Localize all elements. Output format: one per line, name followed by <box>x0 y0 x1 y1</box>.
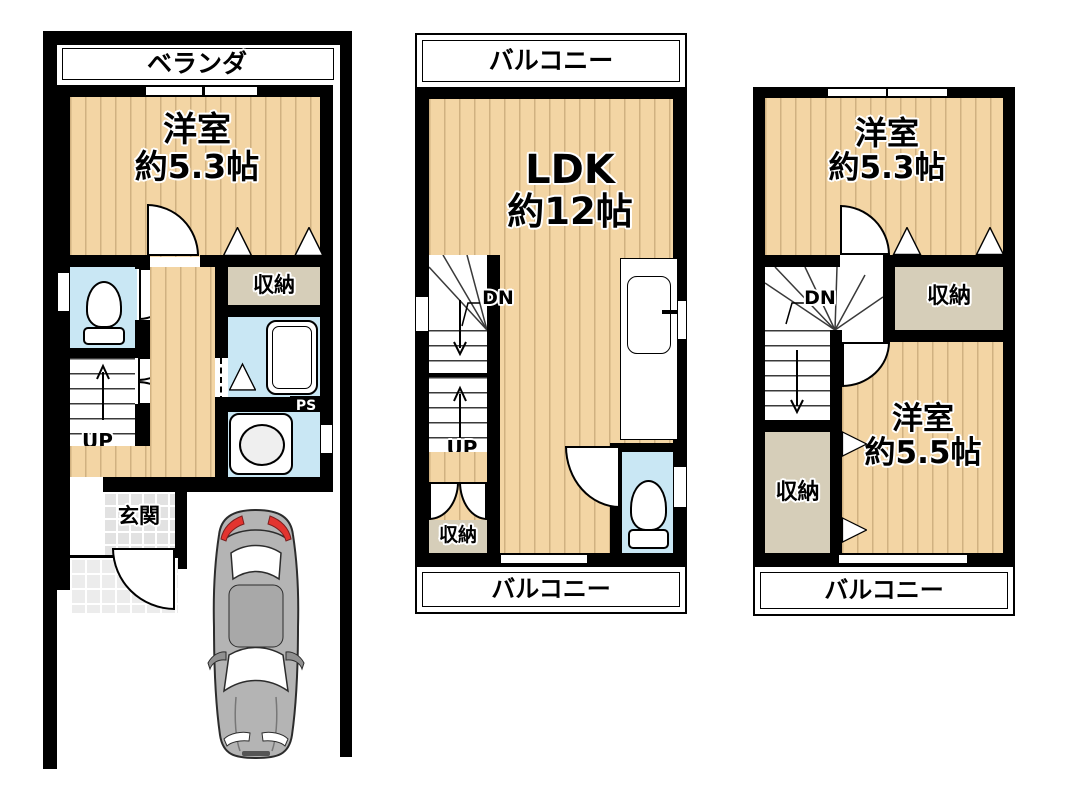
folding-door-icon <box>842 429 867 459</box>
wall <box>830 330 842 553</box>
bathtub-icon <box>266 320 318 395</box>
room-size: 約12帖 <box>470 192 670 233</box>
hall-2f <box>429 452 487 482</box>
wall <box>753 420 830 432</box>
wall <box>215 305 333 317</box>
floor-plan-page: ベランダ 洋室 約5.3帖 UP <box>0 0 1067 800</box>
wall <box>883 330 1003 342</box>
washbasin-bowl-icon <box>239 424 285 466</box>
room-name: LDK <box>470 148 670 192</box>
folding-door-icon <box>221 227 254 256</box>
wall <box>215 397 290 412</box>
window <box>673 466 687 508</box>
balcony-bottom-2f: バルコニー <box>415 565 687 614</box>
folding-door-icon <box>293 227 325 256</box>
dn-label-3f: DN <box>798 288 842 309</box>
balcony-inner-line <box>760 572 1008 609</box>
room-size: 約5.3帖 <box>787 151 987 185</box>
closet-3f-bottom-label: 収納 <box>765 481 830 505</box>
wall <box>888 255 1015 267</box>
folding-door-icon <box>974 227 1006 255</box>
room-youshitsu-3f-bottom-label: 洋室 約5.5帖 <box>843 402 1003 470</box>
wall <box>57 348 137 358</box>
folding-door-icon <box>229 358 256 396</box>
room-size: 約5.3帖 <box>97 149 297 185</box>
balcony-inner-line <box>422 572 680 607</box>
window <box>57 272 70 312</box>
window <box>145 86 203 96</box>
balcony-inner-line <box>422 40 680 82</box>
balcony-3f: バルコニー <box>753 565 1015 616</box>
closet-1f-label: 収納 <box>228 274 320 297</box>
wall <box>57 255 147 267</box>
room-youshitsu-3f-top-label: 洋室 約5.3帖 <box>787 116 987 185</box>
wall <box>1003 98 1015 563</box>
window <box>500 554 588 564</box>
window <box>415 296 429 332</box>
wall <box>135 320 150 358</box>
wall <box>610 443 687 452</box>
veranda-label: ベランダ <box>97 50 297 78</box>
room-name: 洋室 <box>97 112 297 149</box>
wall <box>43 31 57 769</box>
toilet-icon <box>630 480 667 531</box>
window <box>320 424 333 454</box>
wall <box>883 255 895 342</box>
wall <box>753 255 840 267</box>
room-name: 洋室 <box>787 116 987 151</box>
wall <box>215 477 333 492</box>
car-icon <box>200 505 312 763</box>
wall <box>340 31 352 757</box>
sliding-door-icon <box>220 358 222 402</box>
wall <box>135 255 150 269</box>
folding-door-icon <box>891 227 923 255</box>
wall <box>753 98 765 563</box>
room-name: 洋室 <box>843 402 1003 436</box>
wall <box>103 477 215 492</box>
down-arrow-icon <box>789 348 805 418</box>
room-size: 約5.5帖 <box>843 436 1003 470</box>
entrance-label: 玄関 <box>103 505 175 528</box>
hall-1f <box>150 267 215 477</box>
window-mullion <box>886 88 888 97</box>
wall <box>175 477 187 569</box>
dn-label-2f: DN <box>476 288 520 309</box>
faucet-icon <box>662 310 678 314</box>
wall <box>215 402 228 480</box>
toilet-tank-icon <box>83 327 125 345</box>
balcony-top-2f: バルコニー <box>415 33 687 89</box>
window <box>204 86 258 96</box>
kitchen-sink-icon <box>627 276 671 354</box>
folding-door-icon <box>842 515 867 545</box>
closet-3f-top-label: 収納 <box>895 285 1003 309</box>
wall <box>57 97 70 590</box>
room-ldk-label: LDK 約12帖 <box>470 148 670 233</box>
up-arrow-icon <box>95 362 111 422</box>
wall <box>415 89 687 99</box>
window <box>838 554 968 564</box>
hall-1f <box>70 446 150 477</box>
wall <box>43 31 352 45</box>
toilet-icon <box>86 281 122 328</box>
toilet-tank-icon <box>628 529 669 549</box>
room-youshitsu-1f-label: 洋室 約5.3帖 <box>97 112 297 186</box>
closet-2f-label: 収納 <box>429 525 487 546</box>
